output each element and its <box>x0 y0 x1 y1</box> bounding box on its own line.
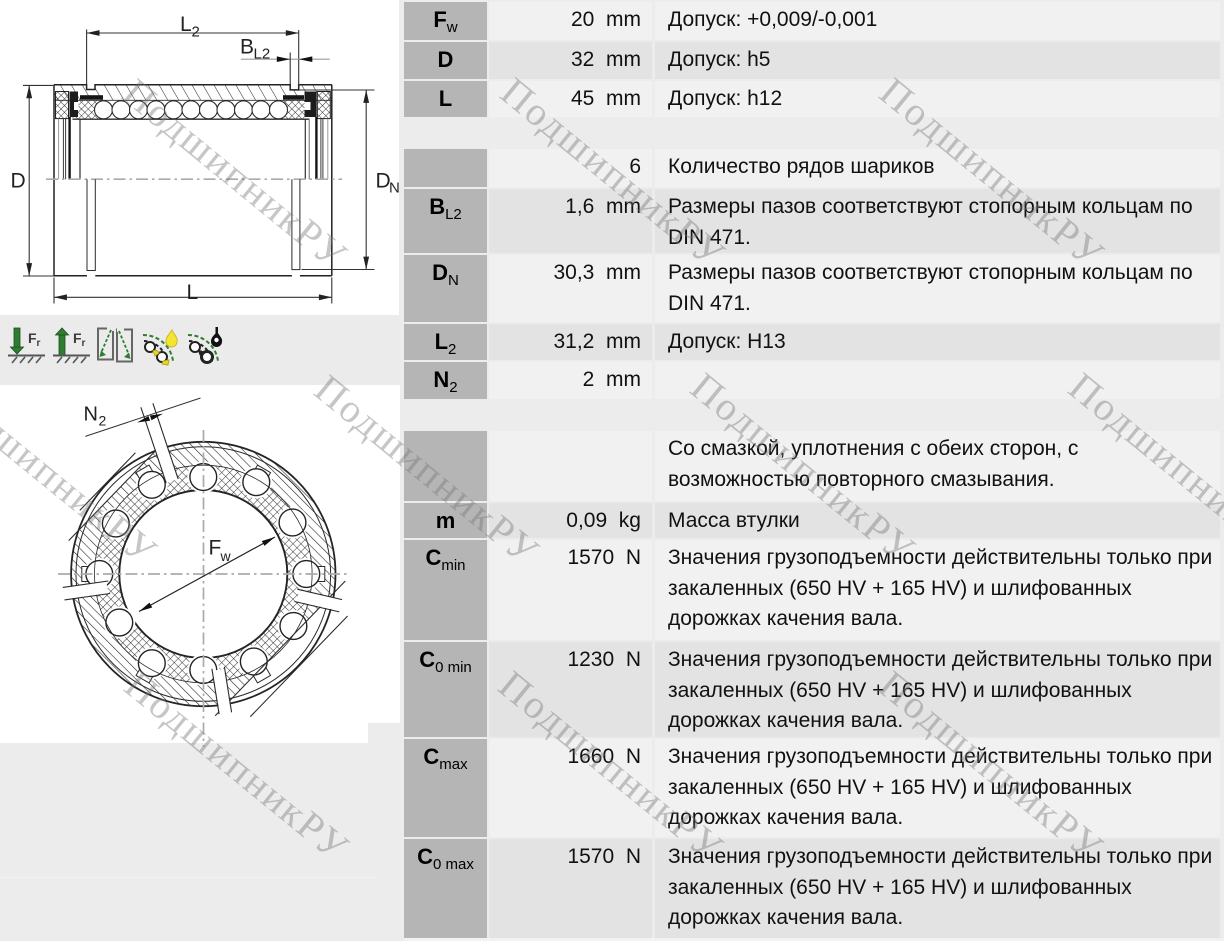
svg-text:F: F <box>209 537 222 560</box>
svg-text:2: 2 <box>192 24 200 41</box>
svg-text:r: r <box>37 338 41 349</box>
svg-text:L: L <box>180 13 192 36</box>
svg-text:N: N <box>389 180 399 197</box>
svg-text:2: 2 <box>99 413 107 429</box>
svg-text:w: w <box>220 548 232 564</box>
svg-text:N: N <box>84 404 98 426</box>
svg-text:r: r <box>82 338 86 349</box>
svg-text:D: D <box>11 170 26 193</box>
svg-text:L: L <box>187 281 199 304</box>
svg-text:B: B <box>240 36 254 59</box>
svg-text:L2: L2 <box>254 46 271 63</box>
